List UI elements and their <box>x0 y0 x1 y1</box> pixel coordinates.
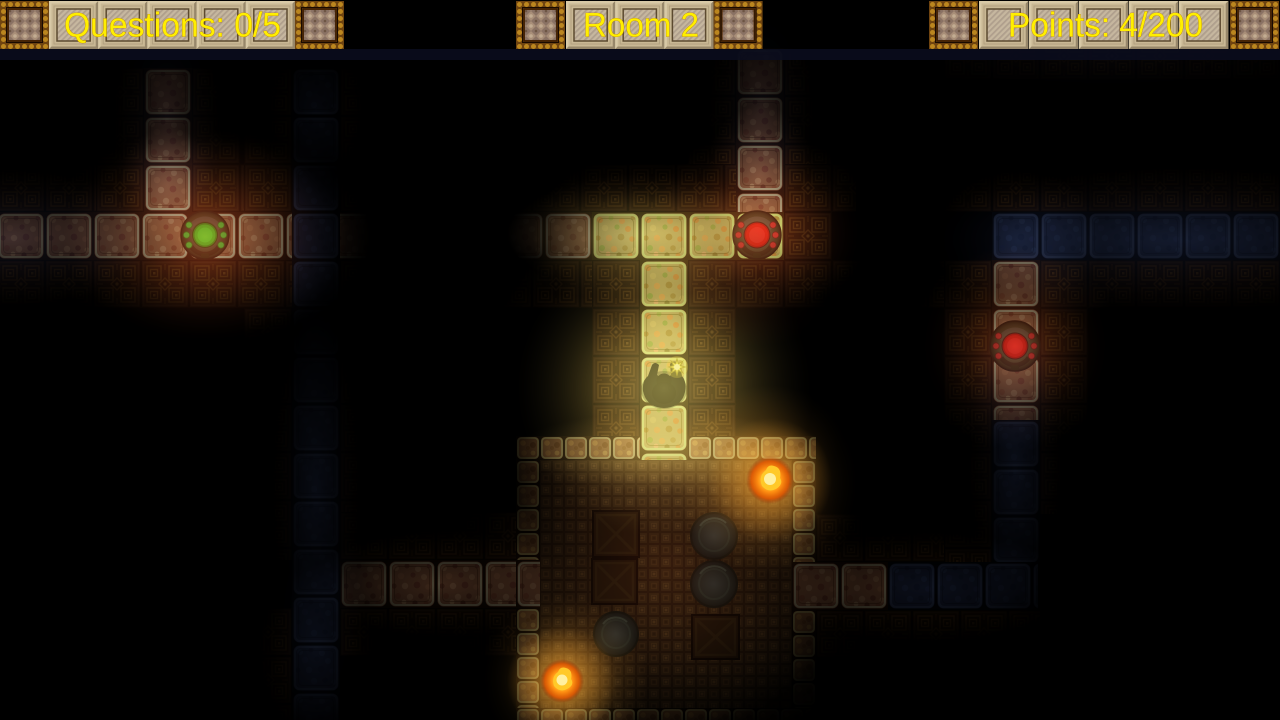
svg-text:Room 2: Room 2 <box>583 7 699 45</box>
svg-text:Questions: 0/5: Questions: 0/5 <box>64 7 281 45</box>
svg-text:Points: 4/200: Points: 4/200 <box>1008 7 1203 45</box>
